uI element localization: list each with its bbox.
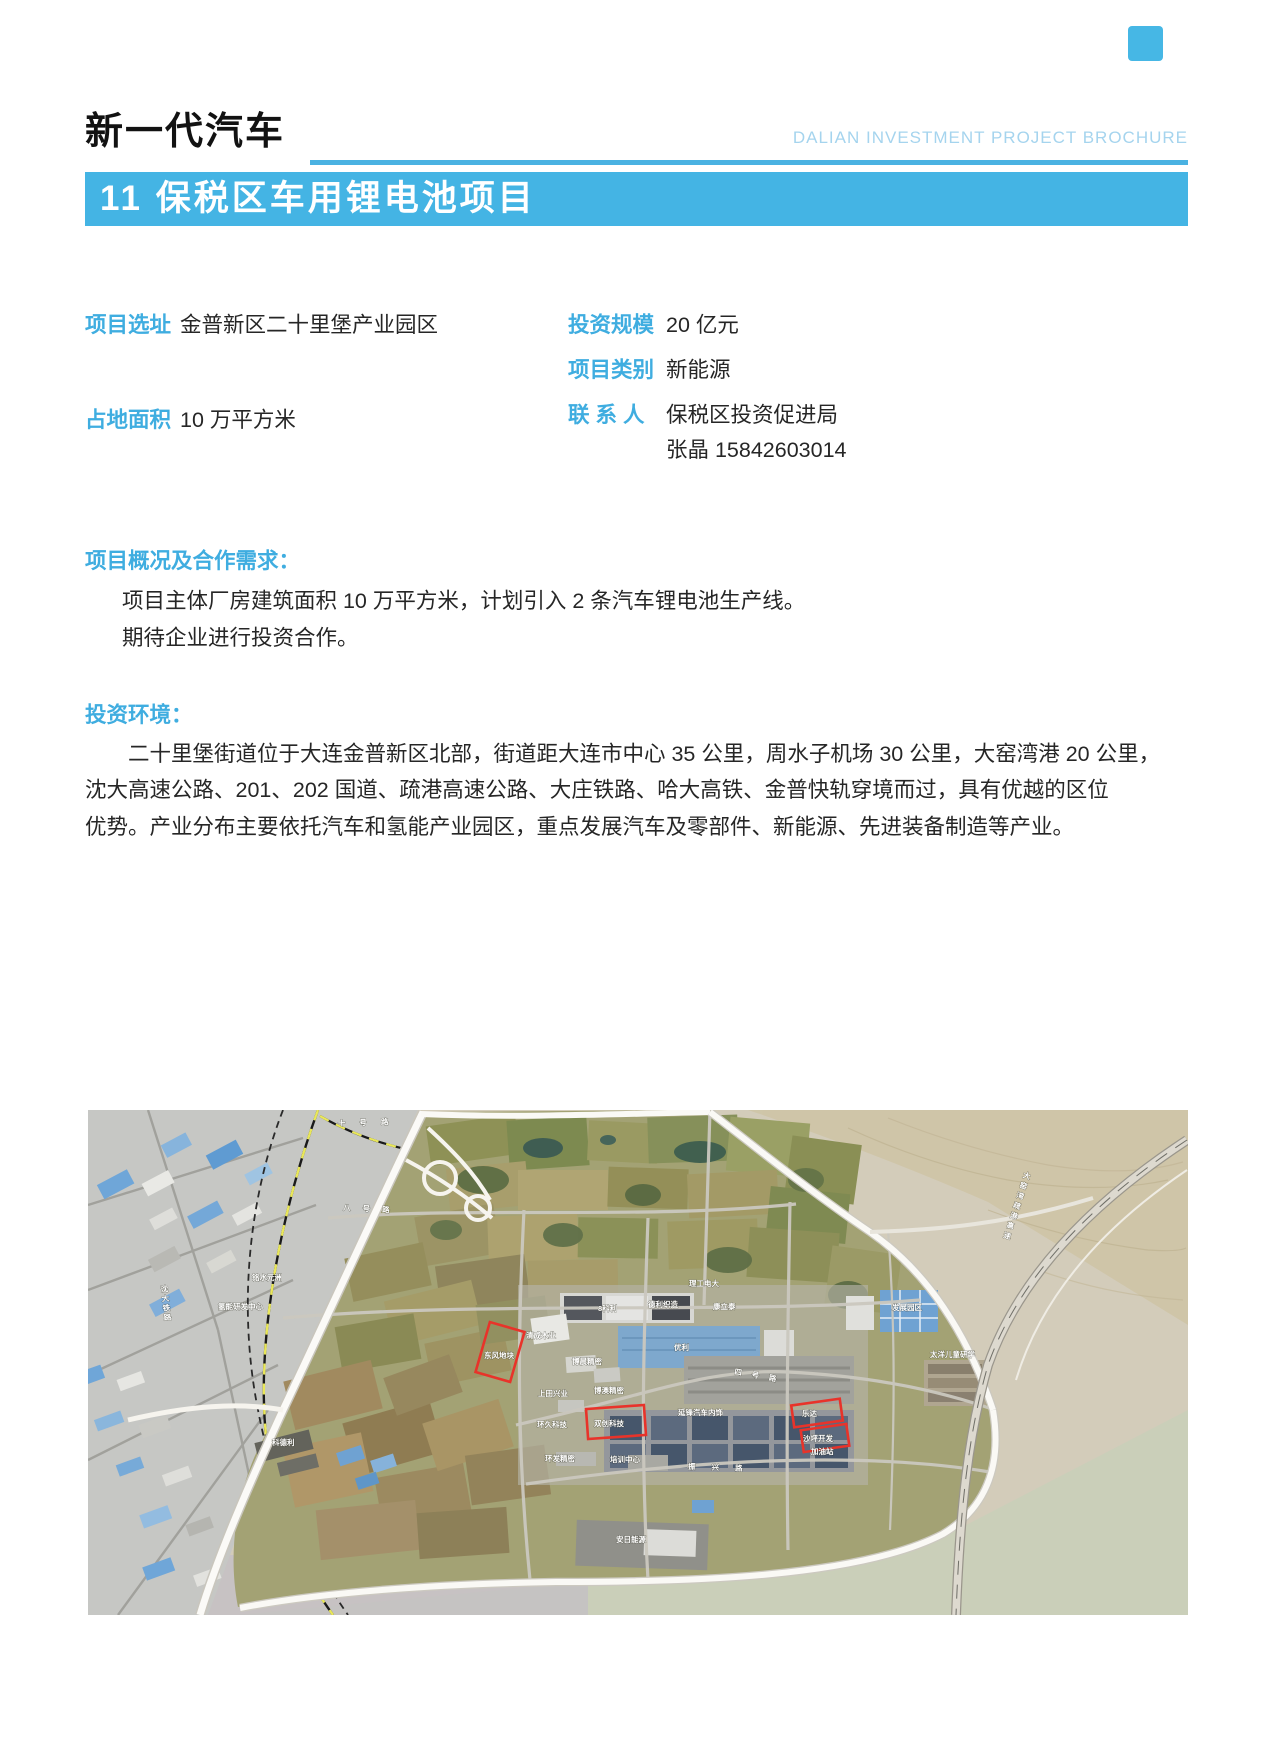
field-label-investment: 投资规模 xyxy=(568,308,654,339)
section-banner-title: 11 保税区车用锂电池项目 xyxy=(100,172,1188,226)
field-label-area: 占地面积 xyxy=(85,403,171,434)
map-label: 8科利 xyxy=(598,1303,617,1313)
header-underline xyxy=(310,160,1188,165)
field-label-contact: 联 系 人 xyxy=(568,398,644,429)
category-title: 新一代汽车 xyxy=(85,100,285,155)
overview-heading: 项目概况及合作需求： xyxy=(85,544,300,575)
map-label: 乐达 xyxy=(802,1408,817,1418)
overview-line: 期待企业进行投资合作。 xyxy=(122,621,359,652)
map-label: 双创科技 xyxy=(594,1418,624,1428)
map-label: 康立泰 xyxy=(713,1301,736,1311)
satellite-map-svg: 十号路八号路铭水元洲氢能研发中心理工电大8科利德利织造康立泰清成木业东风地块优利… xyxy=(88,1110,1188,1615)
satellite-map: 十号路八号路铭水元洲氢能研发中心理工电大8科利德利织造康立泰清成木业东风地块优利… xyxy=(88,1110,1188,1615)
map-label: 科德利 xyxy=(272,1437,295,1447)
environment-line: 二十里堡街道位于大连金普新区北部，街道距大连市中心 35 公里，周水子机场 30… xyxy=(128,737,1160,768)
brochure-page: 新一代汽车 DALIAN INVESTMENT PROJECT BROCHURE… xyxy=(0,0,1280,1737)
map-label: 优利 xyxy=(674,1342,689,1352)
environment-line: 沈大高速公路、201、202 国道、疏港高速公路、大庄铁路、哈大高铁、金普快轨穿… xyxy=(85,773,1109,804)
field-value-contact-person: 张晶 15842603014 xyxy=(666,433,847,464)
map-label: 延锋汽车内饰 xyxy=(677,1407,723,1417)
map-label: 环发精密 xyxy=(545,1453,575,1463)
section-banner: 11 保税区车用锂电池项目 xyxy=(85,172,1188,226)
map-label: 博澳精密 xyxy=(594,1385,624,1395)
map-label: 清成木业 xyxy=(526,1330,556,1340)
field-value-investment: 20 亿元 xyxy=(666,308,739,339)
field-value-category: 新能源 xyxy=(666,353,731,384)
map-label: 培训中心 xyxy=(610,1454,640,1464)
brochure-english-title: DALIAN INVESTMENT PROJECT BROCHURE xyxy=(793,128,1188,148)
overview-line: 项目主体厂房建筑面积 10 万平方米，计划引入 2 条汽车锂电池生产线。 xyxy=(122,584,805,615)
map-label: 发展园区 xyxy=(891,1302,922,1312)
field-label-site: 项目选址 xyxy=(85,308,171,339)
map-label: 氢能研发中心 xyxy=(218,1301,263,1311)
map-label: 东风地块 xyxy=(484,1350,514,1360)
map-label: 上田兴业 xyxy=(538,1388,568,1398)
corner-accent-square xyxy=(1128,26,1163,61)
map-label: 博晨精密 xyxy=(572,1356,602,1366)
map-label: 环久科技 xyxy=(537,1419,567,1429)
map-label: 加油站 xyxy=(810,1446,834,1456)
map-label: 安日能源 xyxy=(616,1534,646,1544)
map-label: 理工电大 xyxy=(689,1278,719,1288)
environment-heading: 投资环境： xyxy=(85,698,193,729)
field-value-area: 10 万平方米 xyxy=(180,403,296,434)
field-label-category: 项目类别 xyxy=(568,353,654,384)
map-label: 沙坪开发 xyxy=(803,1433,833,1443)
environment-line: 优势。产业分布主要依托汽车和氢能产业园区，重点发展汽车及零部件、新能源、先进装备… xyxy=(85,810,1074,841)
map-label: 太洋儿童研学 xyxy=(930,1349,975,1359)
field-value-contact-org: 保税区投资促进局 xyxy=(666,398,838,429)
field-value-site: 金普新区二十里堡产业园区 xyxy=(180,308,438,339)
map-label: 铭水元洲 xyxy=(252,1272,282,1282)
map-label: 德利织造 xyxy=(648,1299,678,1309)
